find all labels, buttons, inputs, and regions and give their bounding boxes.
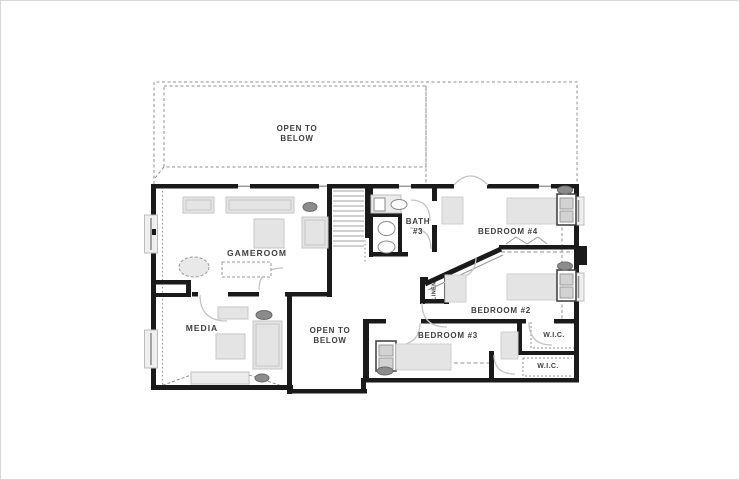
media-speaker-top (256, 311, 272, 320)
label-media: MEDIA (186, 324, 218, 334)
media-sofa (253, 321, 282, 369)
media-furniture (191, 307, 282, 384)
gameroom-sofa-long (226, 197, 294, 213)
bath-toilet-tank (374, 198, 385, 211)
bedroom4-dresser (442, 197, 463, 224)
label-wic-lower: W.I.C. (537, 362, 558, 372)
floor-plan-drawing (1, 1, 740, 480)
bedroom4-furniture (442, 186, 576, 225)
bedroom3-dresser (501, 332, 518, 359)
label-bath-3: BATH #3 (406, 217, 430, 236)
label-linen: LINEN (430, 281, 440, 301)
label-bedroom-3: BEDROOM #3 (418, 331, 478, 341)
label-bedroom-4: BEDROOM #4 (478, 227, 538, 237)
bedroom3-bed-mattress (396, 344, 451, 370)
corner-dashed-diagonal (155, 167, 164, 178)
left-wall-tick (152, 229, 156, 235)
media-speaker-bottom (255, 374, 269, 382)
bedroom2-bed-mattress (507, 274, 558, 300)
media-table (216, 334, 245, 359)
bath-fixture-oval (378, 241, 395, 253)
media-shelf (218, 307, 248, 319)
gameroom-ottoman (254, 219, 284, 248)
bedroom3-pillow (377, 367, 393, 375)
gameroom-sofa-small (183, 197, 214, 213)
label-bedroom-2: BEDROOM #2 (471, 306, 531, 316)
label-open-to-below-top: OPEN TO BELOW (277, 124, 318, 143)
gameroom-furniture (179, 197, 328, 277)
label-open-to-below-center: OPEN TO BELOW (310, 326, 351, 345)
bath-toilet (378, 222, 395, 236)
gameroom-plant (303, 203, 317, 212)
bedroom2-pillow (558, 262, 573, 270)
gameroom-round-table-dashed (179, 257, 209, 277)
gameroom-table-dashed (222, 262, 271, 277)
media-screen (191, 372, 249, 384)
open-to-below-outer-dashed-boundary (154, 82, 577, 184)
gameroom-chair (302, 217, 328, 248)
label-gameroom: GAMEROOM (227, 249, 287, 259)
bedroom4-bed-mattress (507, 198, 558, 224)
label-wic-upper: W.I.C. (543, 331, 564, 341)
bedroom4-door-swing (454, 176, 488, 185)
staircase (333, 191, 364, 246)
floor-plan-image: OPEN TO BELOW GAMEROOM MEDIA OPEN TO BEL… (0, 0, 740, 480)
bedroom2-dresser (445, 275, 466, 302)
bath-sink (391, 200, 407, 210)
knee-wall-break-symbol (506, 237, 547, 244)
bedroom4-pillow (558, 186, 573, 194)
